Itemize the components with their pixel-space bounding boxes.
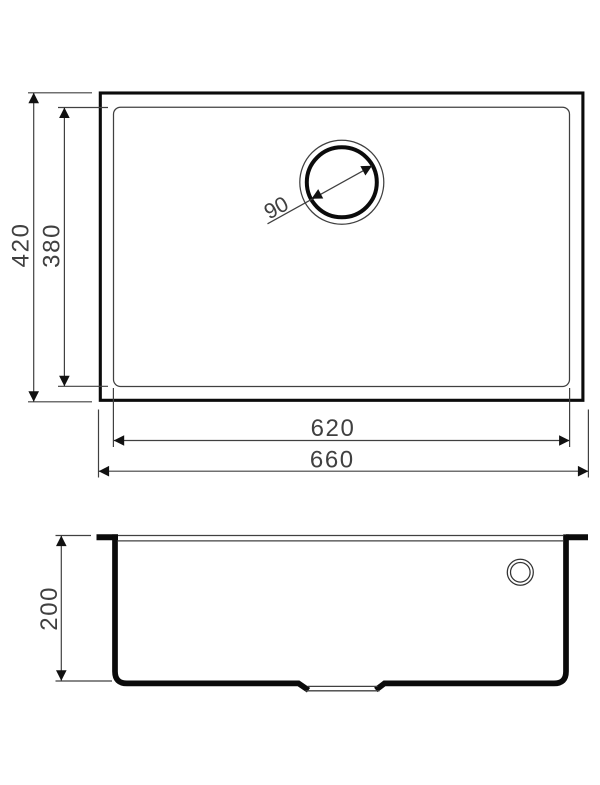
- svg-text:200: 200: [36, 586, 63, 631]
- svg-text:620: 620: [311, 415, 356, 442]
- svg-text:660: 660: [310, 446, 355, 473]
- svg-text:420: 420: [8, 222, 35, 267]
- svg-text:380: 380: [39, 223, 66, 268]
